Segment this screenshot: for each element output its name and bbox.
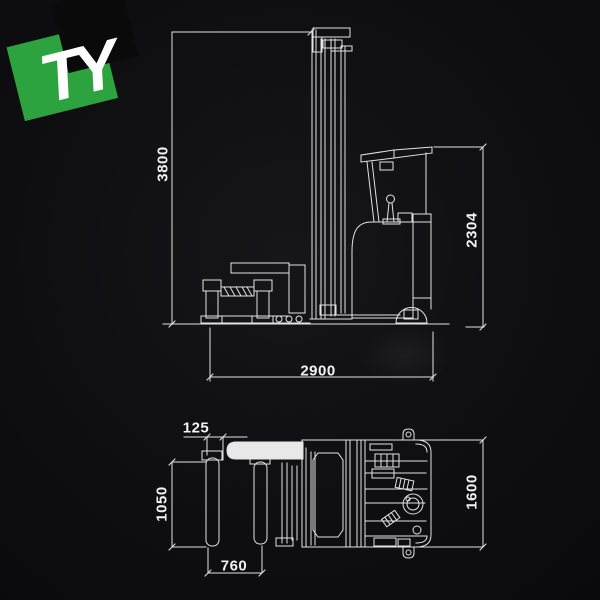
- side-shift-bar: [227, 442, 303, 459]
- top-body: [302, 429, 431, 558]
- dim-label-125: 125: [183, 420, 210, 437]
- control-lever: [383, 195, 400, 224]
- dim-label-2304: 2304: [464, 212, 481, 247]
- side-view: [163, 28, 486, 381]
- drive-wheel: [396, 308, 427, 324]
- dim-label-1050: 1050: [154, 486, 171, 521]
- dim-label-2900: 2900: [300, 363, 335, 380]
- fork-attachment: [201, 263, 310, 323]
- dim-label-3800: 3800: [155, 146, 172, 181]
- dimension-1050: [169, 459, 206, 550]
- carriage: [276, 448, 315, 547]
- clamp-pads: [202, 451, 270, 546]
- product-drawing-canvas: TY: [0, 0, 600, 600]
- cab-floor: [313, 453, 343, 537]
- mast: [312, 28, 352, 318]
- chassis: [310, 213, 431, 319]
- technical-drawing: [0, 0, 600, 600]
- dim-label-1600: 1600: [464, 474, 481, 509]
- dimension-3800: [169, 29, 314, 327]
- top-view: [169, 429, 486, 576]
- dim-label-760: 760: [221, 558, 248, 575]
- overhead-guard: [361, 147, 432, 222]
